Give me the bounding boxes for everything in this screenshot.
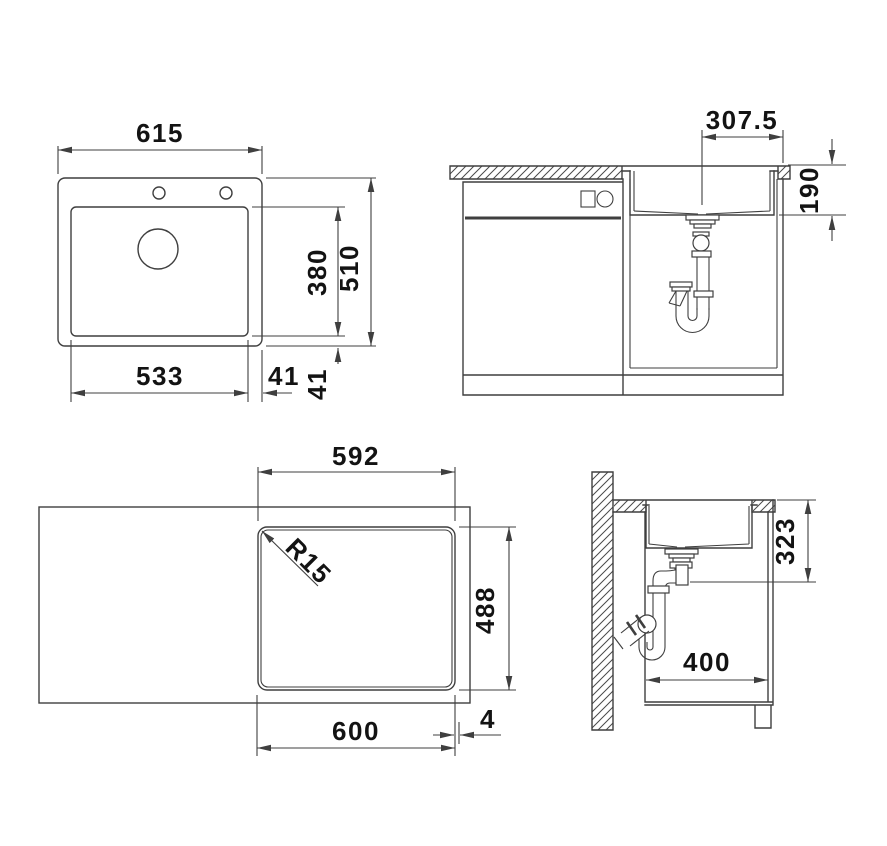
cabinet-outline	[463, 179, 783, 395]
cabinet-side-outline	[645, 500, 773, 728]
view-front-section: 307.5 190	[450, 105, 846, 395]
view-side-section: 323 400	[592, 472, 816, 730]
view-top-plan: 615 510 380 41 533 41	[58, 118, 376, 402]
dim-bowl-outer-width-label: 600	[332, 716, 380, 746]
countertop-hatch-right	[778, 166, 790, 179]
dim-mount-height-label: 323	[770, 517, 800, 565]
drain-trap-front	[669, 215, 719, 333]
dim-edge-offset-label: 4	[480, 704, 496, 734]
technical-drawing-page: 615 510 380 41 533 41	[0, 0, 887, 846]
tap-hole-right	[220, 187, 232, 199]
dim-bowl-depth-label: 380	[302, 248, 332, 296]
extension-lines	[702, 130, 783, 205]
dim-cutout-depth-label: 488	[470, 586, 500, 634]
cabinet-inner-box	[630, 179, 777, 368]
countertop-hatch-left	[450, 166, 622, 179]
dim-overall-width-label: 615	[136, 118, 184, 148]
drain-hole	[138, 229, 178, 269]
bowl-side-inner	[649, 506, 749, 547]
dim-gap-right-label: 41	[268, 361, 300, 391]
sink-full-outline	[39, 507, 470, 703]
drain-trap-side	[614, 549, 698, 660]
control-knob	[597, 191, 613, 207]
bowl-side-outer	[643, 505, 757, 548]
extension-lines	[258, 467, 455, 521]
dim-corner-radius-label: R15	[280, 532, 338, 590]
tap-hole-left	[153, 187, 165, 199]
dim-drain-offset-label: 307.5	[706, 105, 779, 135]
sink-outline	[58, 178, 262, 346]
dim-bowl-width-label: 533	[136, 361, 184, 391]
counter-hatch-left	[614, 500, 646, 512]
dim-gap-bottom-label: 41	[302, 368, 332, 400]
dim-cutout-width-label: 592	[332, 441, 380, 471]
bowl-outline	[71, 207, 248, 336]
control-square	[581, 191, 595, 207]
view-bottom-plan: 592 R15 488 600 4	[39, 441, 516, 756]
counter-hatch-right	[753, 500, 775, 512]
dim-cabinet-clearance-label: 400	[683, 647, 731, 677]
wall-hatch	[592, 472, 613, 730]
dim-bowl-height-label: 190	[794, 166, 824, 214]
sink-technical-drawing: 615 510 380 41 533 41	[0, 0, 887, 846]
